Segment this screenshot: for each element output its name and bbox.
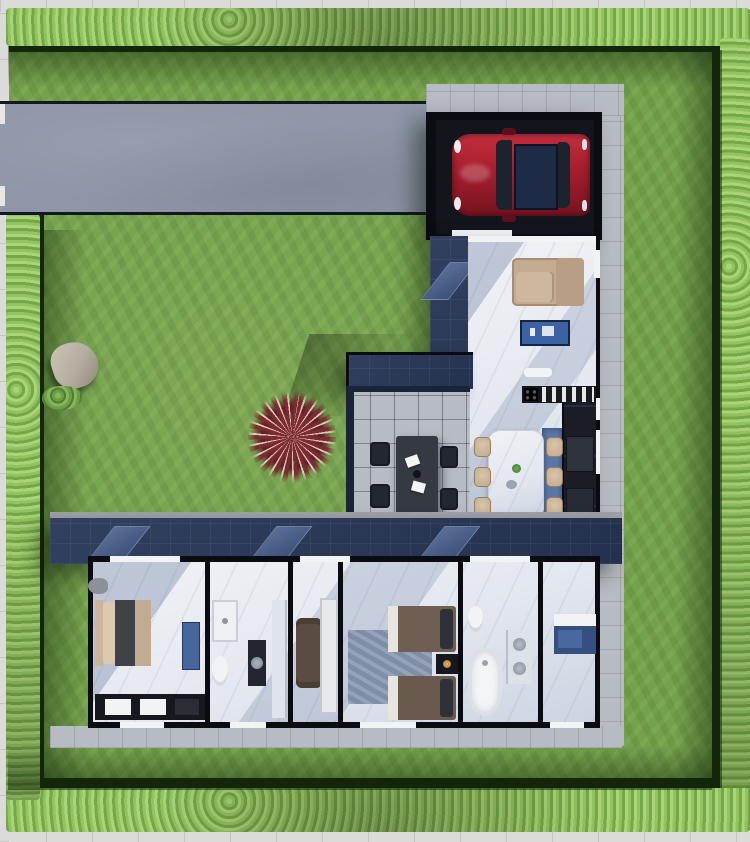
terrace-roof-edge: [346, 352, 473, 389]
dining-chair: [546, 437, 563, 457]
master-wardrobe: [95, 694, 205, 720]
round-basin: [513, 662, 526, 675]
window-sill-top: [468, 236, 596, 242]
single-bed-2: [388, 676, 456, 720]
toilet: [468, 606, 483, 632]
brown-armchair: [296, 618, 322, 688]
wall-divider: [338, 562, 343, 722]
car-taillight-top: [582, 139, 587, 150]
dish-rack: [542, 387, 594, 402]
bed-foot: [135, 600, 151, 666]
bed-sheet-edge: [388, 606, 398, 652]
wall-divider: [538, 562, 543, 722]
sofa-chaise: [556, 258, 584, 306]
cooktop: [524, 388, 538, 401]
terrace-chair: [370, 442, 390, 466]
hedge-shadow-top: [8, 46, 712, 88]
hedge-shadow-bottom: [8, 746, 712, 790]
bed-pillows: [103, 602, 115, 664]
console-item: [542, 326, 554, 336]
wall-shelf: [524, 368, 552, 377]
entry-console-desk: [554, 614, 596, 654]
window-sill: [470, 556, 530, 562]
freestanding-bathtub: [468, 648, 502, 716]
door-sill: [550, 722, 584, 728]
wardrobe-door-dark: [175, 699, 199, 715]
dining-chair: [546, 467, 563, 487]
car-headlight-top: [454, 140, 461, 153]
toilet: [212, 656, 228, 686]
terrace-frame-top: [346, 386, 470, 392]
carport: [426, 84, 624, 240]
tub-drain: [482, 660, 488, 666]
vanity-sink: [212, 600, 238, 642]
red-car: [452, 134, 590, 216]
double-basin-counter: [506, 630, 532, 684]
door-sill: [230, 722, 266, 728]
table-bowl: [413, 470, 421, 478]
wall-divider: [288, 562, 293, 722]
door-sill: [120, 722, 164, 728]
car-sunroof: [514, 144, 558, 210]
bed-sheet-edge: [388, 676, 398, 720]
round-basin: [513, 638, 526, 651]
side-chair: [88, 578, 108, 594]
terrace-chair: [440, 488, 458, 510]
faucet: [222, 618, 228, 624]
single-bed-1: [388, 606, 456, 652]
desk-top: [554, 614, 596, 626]
hedge-top: [6, 8, 750, 46]
hedge-right: [720, 38, 750, 800]
tall-white-wardrobe: [320, 598, 338, 714]
wardrobe-door: [105, 699, 131, 715]
wall-divider: [458, 562, 463, 722]
master-bed: [95, 600, 151, 666]
round-basin: [251, 657, 263, 669]
console-item: [530, 328, 535, 336]
shower: [272, 600, 287, 718]
table-plant: [512, 464, 521, 473]
car-mirror-bottom: [502, 215, 516, 222]
hedge-shadow-right: [676, 50, 722, 788]
terrace-chair: [440, 446, 458, 468]
table-plate: [506, 480, 517, 489]
sofa-seat-cushions: [516, 272, 554, 302]
dining-chair: [474, 437, 491, 457]
bed-pillow: [440, 679, 453, 717]
door-sill: [360, 722, 416, 728]
cabinet-appliance: [566, 436, 594, 472]
bed-headboard: [95, 600, 103, 666]
window-right-1: [594, 250, 600, 278]
nightstand: [436, 654, 458, 674]
bed-duvet: [115, 600, 135, 666]
car-headlight-bottom: [454, 197, 461, 210]
desk-front: [558, 630, 582, 648]
driveway-curb-top: [0, 104, 5, 124]
terrace-chair: [370, 484, 390, 508]
window-sill: [110, 556, 180, 562]
car-taillight-bottom: [582, 200, 587, 211]
dining-chair: [474, 467, 491, 487]
hedge-bottom: [6, 788, 750, 832]
driveway: [0, 101, 442, 215]
floor-plan-scene: [0, 0, 750, 842]
walkway-bottom: [50, 726, 622, 748]
wardrobe-door: [140, 699, 166, 715]
basin-stand: [248, 640, 266, 686]
bedroom-bench: [182, 622, 200, 670]
bed-pillow: [440, 609, 453, 649]
car-hood-highlight: [460, 164, 490, 182]
lamp: [443, 660, 451, 668]
wall-divider: [205, 562, 210, 722]
outdoor-table: [396, 436, 438, 520]
media-console: [520, 320, 570, 346]
car-mirror-top: [502, 128, 516, 135]
driveway-curb-bottom: [0, 186, 5, 206]
bottom-wing: [50, 512, 622, 728]
hedge-left: [6, 214, 40, 800]
dining-table: [488, 430, 544, 520]
car-rear-window: [558, 142, 570, 208]
car-windshield: [496, 140, 512, 210]
red-ornamental-grass: [248, 391, 336, 483]
